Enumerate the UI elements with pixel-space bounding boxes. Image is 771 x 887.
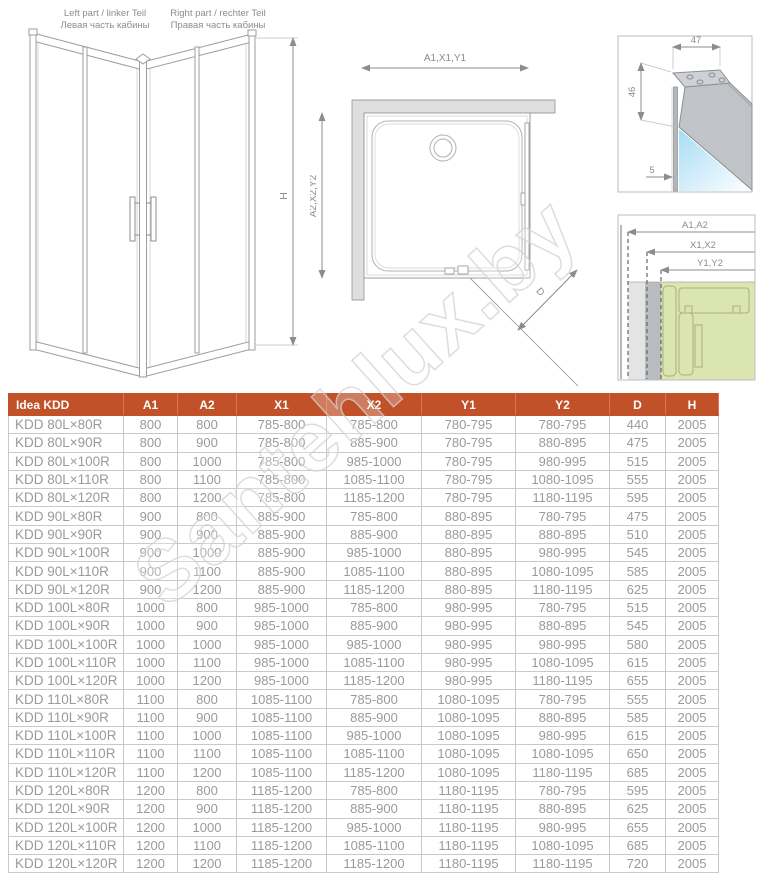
value-cell: 785-800: [237, 416, 327, 434]
value-cell: 785-800: [327, 598, 422, 616]
value-cell: 1080-1095: [422, 745, 516, 763]
value-cell: 880-895: [516, 708, 610, 726]
value-cell: 2005: [666, 507, 719, 525]
column-header: X1: [237, 394, 327, 416]
value-cell: 1100: [124, 690, 178, 708]
value-cell: 2005: [666, 727, 719, 745]
model-cell: KDD 110L×90R: [9, 708, 124, 726]
value-cell: 885-900: [327, 708, 422, 726]
value-cell: 1085-1100: [237, 763, 327, 781]
dim-47-label: 47: [691, 35, 702, 46]
value-cell: 615: [610, 727, 666, 745]
value-cell: 1080-1095: [422, 727, 516, 745]
value-cell: 880-895: [516, 800, 610, 818]
value-cell: 625: [610, 580, 666, 598]
value-cell: 780-795: [516, 598, 610, 616]
dim-a1a2-label: A1,A2: [682, 220, 708, 231]
value-cell: 800: [178, 416, 237, 434]
value-cell: 1000: [178, 635, 237, 653]
value-cell: 780-795: [516, 690, 610, 708]
value-cell: 2005: [666, 635, 719, 653]
value-cell: 885-900: [327, 525, 422, 543]
value-cell: 1185-1200: [327, 489, 422, 507]
table-row: KDD 90L×100R9001000885-900985-1000880-89…: [9, 544, 719, 562]
value-cell: 595: [610, 781, 666, 799]
value-cell: 2005: [666, 580, 719, 598]
value-cell: 1000: [124, 672, 178, 690]
value-cell: 510: [610, 525, 666, 543]
value-cell: 1180-1195: [422, 800, 516, 818]
value-cell: 985-1000: [237, 653, 327, 671]
value-cell: 1180-1195: [422, 836, 516, 854]
profile-detail-drawing: 47 46 5: [600, 25, 771, 205]
value-cell: 2005: [666, 470, 719, 488]
table-row: KDD 90L×110R9001100885-9001085-1100880-8…: [9, 562, 719, 580]
value-cell: 1180-1195: [516, 763, 610, 781]
frame-profiles: [29, 29, 256, 377]
value-cell: 555: [610, 690, 666, 708]
column-header: X2: [327, 394, 422, 416]
value-cell: 685: [610, 836, 666, 854]
value-cell: 980-995: [516, 452, 610, 470]
value-cell: 1200: [178, 855, 237, 873]
value-cell: 985-1000: [327, 544, 422, 562]
table-row: KDD 110L×120R110012001085-11001185-12001…: [9, 763, 719, 781]
value-cell: 1200: [124, 818, 178, 836]
table-row: KDD 110L×100R110010001085-1100985-100010…: [9, 727, 719, 745]
table-row: KDD 120L×110R120011001185-12001085-11001…: [9, 836, 719, 854]
table-row: KDD 120L×90R12009001185-1200885-9001180-…: [9, 800, 719, 818]
value-cell: 2005: [666, 672, 719, 690]
value-cell: 2005: [666, 653, 719, 671]
model-cell: KDD 110L×100R: [9, 727, 124, 745]
value-cell: 785-800: [237, 434, 327, 452]
value-cell: 985-1000: [237, 635, 327, 653]
value-cell: 800: [124, 489, 178, 507]
dim-46-label: 46: [627, 87, 638, 98]
value-cell: 1100: [178, 470, 237, 488]
caption-left-en: Left part / linker Teil: [64, 8, 146, 19]
value-cell: 885-900: [327, 800, 422, 818]
value-cell: 655: [610, 672, 666, 690]
table-row: KDD 80L×100R8001000785-800985-1000780-79…: [9, 452, 719, 470]
value-cell: 1085-1100: [327, 745, 422, 763]
value-cell: 440: [610, 416, 666, 434]
value-cell: 880-895: [422, 544, 516, 562]
value-cell: 885-900: [237, 544, 327, 562]
value-cell: 800: [124, 434, 178, 452]
value-cell: 2005: [666, 598, 719, 616]
profile-section-area: [661, 282, 755, 380]
value-cell: 1080-1095: [422, 708, 516, 726]
width-dim-label: A1,X1,Y1: [424, 53, 467, 64]
value-cell: 785-800: [237, 452, 327, 470]
value-cell: 800: [178, 507, 237, 525]
value-cell: 1080-1095: [516, 470, 610, 488]
value-cell: 885-900: [237, 507, 327, 525]
model-cell: KDD 90L×120R: [9, 580, 124, 598]
column-header: Y1: [422, 394, 516, 416]
dimensions-table-body: KDD 80L×80R800800785-800785-800780-79578…: [9, 416, 719, 873]
table-row: KDD 120L×100R120010001185-1200985-100011…: [9, 818, 719, 836]
value-cell: 2005: [666, 745, 719, 763]
value-cell: 880-895: [422, 580, 516, 598]
value-cell: 1180-1195: [422, 818, 516, 836]
value-cell: 1100: [178, 653, 237, 671]
table-row: KDD 80L×110R8001100785-8001085-1100780-7…: [9, 470, 719, 488]
value-cell: 1100: [124, 763, 178, 781]
value-cell: 780-795: [422, 416, 516, 434]
value-cell: 1185-1200: [327, 855, 422, 873]
value-cell: 800: [178, 598, 237, 616]
width-dimension: A1,X1,Y1: [362, 53, 528, 68]
value-cell: 980-995: [422, 617, 516, 635]
value-cell: 1180-1195: [422, 781, 516, 799]
value-cell: 1200: [124, 855, 178, 873]
value-cell: 585: [610, 708, 666, 726]
value-cell: 2005: [666, 781, 719, 799]
value-cell: 1100: [178, 562, 237, 580]
value-cell: 545: [610, 544, 666, 562]
value-cell: 1200: [178, 489, 237, 507]
value-cell: 1185-1200: [237, 818, 327, 836]
model-cell: KDD 80L×90R: [9, 434, 124, 452]
table-row: KDD 100L×80R1000800985-1000785-800980-99…: [9, 598, 719, 616]
value-cell: 2005: [666, 525, 719, 543]
value-cell: 625: [610, 800, 666, 818]
value-cell: 785-800: [327, 416, 422, 434]
model-cell: KDD 120L×110R: [9, 836, 124, 854]
value-cell: 1080-1095: [516, 745, 610, 763]
value-cell: 2005: [666, 855, 719, 873]
value-cell: 1085-1100: [327, 562, 422, 580]
value-cell: 1200: [178, 672, 237, 690]
value-cell: 785-800: [327, 690, 422, 708]
table-row: KDD 120L×80R12008001185-1200785-8001180-…: [9, 781, 719, 799]
table-row: KDD 110L×80R11008001085-1100785-8001080-…: [9, 690, 719, 708]
caption-right-en: Right part / rechter Teil: [170, 8, 265, 19]
model-cell: KDD 90L×110R: [9, 562, 124, 580]
value-cell: 1180-1195: [516, 580, 610, 598]
table-row: KDD 100L×120R10001200985-10001185-120098…: [9, 672, 719, 690]
value-cell: 985-1000: [327, 727, 422, 745]
table-row: KDD 100L×90R1000900985-1000885-900980-99…: [9, 617, 719, 635]
value-cell: 1085-1100: [327, 653, 422, 671]
diagonal-dim-label: D: [533, 286, 546, 299]
value-cell: 1000: [178, 452, 237, 470]
value-cell: 785-800: [237, 489, 327, 507]
value-cell: 900: [178, 434, 237, 452]
value-cell: 1185-1200: [327, 580, 422, 598]
value-cell: 885-900: [327, 434, 422, 452]
wall-strip: [628, 282, 645, 380]
value-cell: 1100: [178, 745, 237, 763]
model-cell: KDD 100L×100R: [9, 635, 124, 653]
value-cell: 1100: [124, 708, 178, 726]
model-cell: KDD 120L×80R: [9, 781, 124, 799]
value-cell: 1000: [178, 727, 237, 745]
column-header: A1: [124, 394, 178, 416]
value-cell: 650: [610, 745, 666, 763]
value-cell: 515: [610, 452, 666, 470]
model-cell: KDD 90L×90R: [9, 525, 124, 543]
value-cell: 900: [124, 544, 178, 562]
column-header: D: [610, 394, 666, 416]
table-row: KDD 80L×90R800900785-800885-900780-79588…: [9, 434, 719, 452]
value-cell: 2005: [666, 836, 719, 854]
value-cell: 1185-1200: [327, 672, 422, 690]
value-cell: 1185-1200: [237, 855, 327, 873]
value-cell: 985-1000: [237, 598, 327, 616]
value-cell: 900: [124, 507, 178, 525]
model-cell: KDD 80L×80R: [9, 416, 124, 434]
model-cell: KDD 100L×90R: [9, 617, 124, 635]
table-row: KDD 80L×80R800800785-800785-800780-79578…: [9, 416, 719, 434]
value-cell: 1080-1095: [516, 562, 610, 580]
model-cell: KDD 120L×100R: [9, 818, 124, 836]
shower-tray: [372, 121, 522, 271]
model-cell: KDD 80L×100R: [9, 452, 124, 470]
model-cell: KDD 100L×120R: [9, 672, 124, 690]
value-cell: 1000: [124, 653, 178, 671]
value-cell: 785-800: [327, 781, 422, 799]
value-cell: 1085-1100: [327, 836, 422, 854]
column-header: H: [666, 394, 719, 416]
value-cell: 585: [610, 562, 666, 580]
value-cell: 2005: [666, 562, 719, 580]
value-cell: 900: [178, 708, 237, 726]
value-cell: 685: [610, 763, 666, 781]
value-cell: 2005: [666, 544, 719, 562]
value-cell: 1180-1195: [516, 672, 610, 690]
value-cell: 615: [610, 653, 666, 671]
value-cell: 985-1000: [327, 818, 422, 836]
value-cell: 555: [610, 470, 666, 488]
value-cell: 1100: [178, 836, 237, 854]
value-cell: 1200: [124, 836, 178, 854]
table-row: KDD 90L×120R9001200885-9001185-1200880-8…: [9, 580, 719, 598]
dim-5-label: 5: [649, 165, 654, 176]
value-cell: 880-895: [422, 525, 516, 543]
value-cell: 980-995: [422, 635, 516, 653]
value-cell: 1085-1100: [237, 745, 327, 763]
cabin-isometric-drawing: Left part / linker Teil Левая часть каби…: [0, 0, 310, 390]
value-cell: 800: [124, 416, 178, 434]
value-cell: 880-895: [516, 434, 610, 452]
value-cell: 2005: [666, 690, 719, 708]
value-cell: 780-795: [516, 781, 610, 799]
value-cell: 1080-1095: [422, 690, 516, 708]
value-cell: 1085-1100: [237, 708, 327, 726]
value-cell: 985-1000: [237, 672, 327, 690]
value-cell: 980-995: [422, 598, 516, 616]
model-cell: KDD 100L×110R: [9, 653, 124, 671]
value-cell: 1200: [124, 781, 178, 799]
caption-right-ru: Правая часть кабины: [171, 20, 266, 31]
model-cell: KDD 80L×110R: [9, 470, 124, 488]
value-cell: 980-995: [422, 653, 516, 671]
table-row: KDD 90L×90R900900885-900885-900880-89588…: [9, 525, 719, 543]
value-cell: 780-795: [516, 416, 610, 434]
value-cell: 985-1000: [327, 452, 422, 470]
value-cell: 1100: [124, 727, 178, 745]
value-cell: 545: [610, 617, 666, 635]
diagonal-entry-dimension: D: [470, 270, 578, 386]
value-cell: 885-900: [237, 525, 327, 543]
value-cell: 1180-1195: [422, 855, 516, 873]
value-cell: 2005: [666, 818, 719, 836]
value-cell: 900: [124, 580, 178, 598]
value-cell: 1000: [124, 617, 178, 635]
value-cell: 1185-1200: [237, 800, 327, 818]
value-cell: 900: [178, 525, 237, 543]
column-header: A2: [178, 394, 237, 416]
value-cell: 1080-1095: [516, 653, 610, 671]
table-row: KDD 90L×80R900800885-900785-800880-89578…: [9, 507, 719, 525]
model-cell: KDD 120L×90R: [9, 800, 124, 818]
model-cell: KDD 120L×120R: [9, 855, 124, 873]
value-cell: 785-800: [237, 470, 327, 488]
dimensions-table: Idea KDDA1A2X1X2Y1Y2DH KDD 80L×80R800800…: [8, 393, 719, 873]
value-cell: 900: [124, 562, 178, 580]
value-cell: 880-895: [422, 507, 516, 525]
value-cell: 2005: [666, 763, 719, 781]
value-cell: 1000: [124, 635, 178, 653]
value-cell: 985-1000: [237, 617, 327, 635]
value-cell: 800: [124, 452, 178, 470]
model-cell: KDD 90L×100R: [9, 544, 124, 562]
value-cell: 475: [610, 434, 666, 452]
value-cell: 1185-1200: [237, 836, 327, 854]
value-cell: 785-800: [327, 507, 422, 525]
value-cell: 2005: [666, 708, 719, 726]
table-row: KDD 80L×120R8001200785-8001185-1200780-7…: [9, 489, 719, 507]
value-cell: 880-895: [422, 562, 516, 580]
plan-view-drawing: A1,X1,Y1 A2,X2,Y2 D: [310, 0, 600, 390]
value-cell: 1200: [178, 580, 237, 598]
caption-left-ru: Левая часть кабины: [61, 20, 150, 31]
value-cell: 2005: [666, 416, 719, 434]
model-cell: KDD 100L×80R: [9, 598, 124, 616]
model-cell: KDD 110L×80R: [9, 690, 124, 708]
value-cell: 475: [610, 507, 666, 525]
value-cell: 1085-1100: [237, 727, 327, 745]
depth-dimension: A2,X2,Y2: [310, 113, 322, 278]
table-row: KDD 120L×120R120012001185-12001185-12001…: [9, 855, 719, 873]
value-cell: 2005: [666, 452, 719, 470]
value-cell: 595: [610, 489, 666, 507]
value-cell: 1085-1100: [327, 470, 422, 488]
value-cell: 780-795: [422, 434, 516, 452]
model-cell: KDD 110L×110R: [9, 745, 124, 763]
value-cell: 780-795: [422, 489, 516, 507]
column-header-model: Idea KDD: [9, 394, 124, 416]
value-cell: 580: [610, 635, 666, 653]
column-header: Y2: [516, 394, 610, 416]
value-cell: 980-995: [516, 544, 610, 562]
value-cell: 655: [610, 818, 666, 836]
height-dim-label: H: [278, 192, 290, 200]
table-row: KDD 100L×110R10001100985-10001085-110098…: [9, 653, 719, 671]
value-cell: 880-895: [516, 525, 610, 543]
value-cell: 885-900: [237, 580, 327, 598]
value-cell: 1080-1095: [516, 836, 610, 854]
dim-x1x2-label: X1,X2: [690, 240, 716, 251]
value-cell: 980-995: [516, 727, 610, 745]
value-cell: 980-995: [516, 818, 610, 836]
table-header-row: Idea KDDA1A2X1X2Y1Y2DH: [9, 394, 719, 416]
value-cell: 720: [610, 855, 666, 873]
value-cell: 980-995: [422, 672, 516, 690]
value-cell: 1185-1200: [237, 781, 327, 799]
value-cell: 1085-1100: [237, 690, 327, 708]
value-cell: 780-795: [516, 507, 610, 525]
value-cell: 1185-1200: [327, 763, 422, 781]
value-cell: 900: [178, 800, 237, 818]
table-row: KDD 110L×110R110011001085-11001085-11001…: [9, 745, 719, 763]
table-row: KDD 110L×90R11009001085-1100885-9001080-…: [9, 708, 719, 726]
depth-dim-label: A2,X2,Y2: [310, 174, 319, 217]
value-cell: 1000: [124, 598, 178, 616]
value-cell: 980-995: [516, 635, 610, 653]
value-cell: 900: [124, 525, 178, 543]
value-cell: 900: [178, 617, 237, 635]
model-cell: KDD 110L×120R: [9, 763, 124, 781]
value-cell: 880-895: [516, 617, 610, 635]
value-cell: 1000: [178, 544, 237, 562]
value-cell: 800: [124, 470, 178, 488]
height-dimension: H: [256, 38, 298, 345]
value-cell: 800: [178, 690, 237, 708]
value-cell: 1200: [124, 800, 178, 818]
value-cell: 985-1000: [327, 635, 422, 653]
model-cell: KDD 80L×120R: [9, 489, 124, 507]
value-cell: 1080-1095: [422, 763, 516, 781]
value-cell: 2005: [666, 800, 719, 818]
value-cell: 885-900: [327, 617, 422, 635]
value-cell: 2005: [666, 617, 719, 635]
value-cell: 2005: [666, 489, 719, 507]
value-cell: 1180-1195: [516, 855, 610, 873]
value-cell: 780-795: [422, 452, 516, 470]
value-cell: 1180-1195: [516, 489, 610, 507]
value-cell: 800: [178, 781, 237, 799]
value-cell: 780-795: [422, 470, 516, 488]
table-row: KDD 100L×100R10001000985-1000985-1000980…: [9, 635, 719, 653]
value-cell: 515: [610, 598, 666, 616]
wall-section-detail-drawing: A1,A2 X1,X2 Y1,Y2: [600, 205, 771, 390]
model-cell: KDD 90L×80R: [9, 507, 124, 525]
dim-y1y2-label: Y1,Y2: [697, 258, 723, 269]
value-cell: 1000: [178, 818, 237, 836]
value-cell: 1100: [124, 745, 178, 763]
spec-sheet-page: Santehlux.by Left part / linker Teil Лев…: [0, 0, 771, 887]
value-cell: 2005: [666, 434, 719, 452]
value-cell: 885-900: [237, 562, 327, 580]
value-cell: 1200: [178, 763, 237, 781]
